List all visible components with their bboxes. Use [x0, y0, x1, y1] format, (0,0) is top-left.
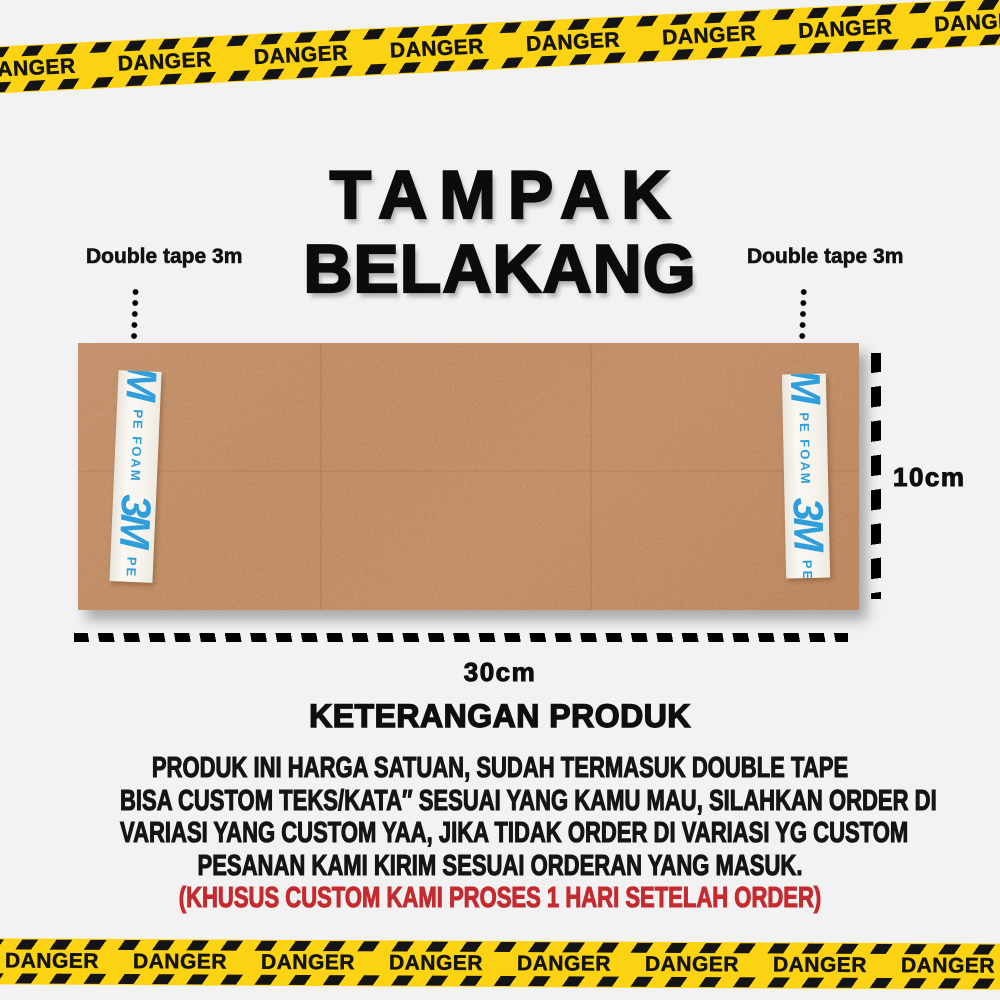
pe-foam-label: PE FOAM — [797, 412, 814, 486]
title-line-1: TAMPAK — [6, 158, 1000, 232]
product-board-back: 3M PE FOAM 3M PE FOAM 3M PE FOAM 3M PE F… — [78, 343, 859, 610]
3m-logo: 3M — [120, 370, 162, 398]
board-seam — [320, 343, 322, 610]
danger-text: DANGER — [389, 951, 483, 975]
wood-texture — [78, 343, 859, 610]
danger-text: DANGER — [253, 41, 348, 69]
3m-tape-strip-text: 3M PE FOAM 3M PE FOAM — [782, 374, 830, 579]
double-tape-label-right: Double tape 3m — [747, 245, 903, 269]
description-line: BISA CUSTOM TEKS/KATA″ SESUAI YANG KAMU … — [120, 785, 880, 818]
danger-text: DANGER — [389, 35, 484, 63]
3m-logo: 3M — [784, 374, 827, 401]
product-description: PRODUK INI HARGA SATUAN, SUDAH TERMASUK … — [120, 752, 880, 915]
danger-text: DANGER — [901, 954, 995, 978]
width-dimension-line — [74, 633, 848, 642]
board-seam — [590, 343, 592, 610]
danger-text: DANGER — [662, 21, 757, 49]
danger-text: DANGER — [0, 54, 76, 82]
pe-foam-label: PE FOAM — [800, 560, 817, 579]
danger-text: DANGER — [117, 48, 212, 76]
custom-note-highlight: (KHUSUS CUSTOM KAMI PROSES 1 HARI SETELA… — [120, 882, 880, 915]
pe-foam-label: PE FOAM — [128, 409, 146, 483]
description-line: PRODUK INI HARGA SATUAN, SUDAH TERMASUK … — [120, 752, 880, 785]
title-line-2: BELAKANG — [0, 232, 1000, 306]
3m-logo: 3M — [787, 497, 830, 548]
danger-text: DANGER — [645, 953, 739, 977]
3m-tape-strip-right: 3M PE FOAM 3M PE FOAM — [782, 374, 830, 579]
width-dimension-label: 30cm — [0, 657, 1000, 688]
description-line: VARIASI YANG CUSTOM YAA, JIKA TIDAK ORDE… — [120, 817, 880, 850]
danger-text: DANGER — [773, 953, 867, 977]
danger-text: DANGER — [5, 949, 99, 973]
3m-tape-strip-left: 3M PE FOAM 3M PE FOAM — [109, 370, 161, 583]
3m-logo: 3M — [114, 494, 158, 546]
danger-text: DANGER — [526, 28, 621, 56]
board-seam — [78, 470, 859, 472]
product-infographic: DANGER DANGER DANGER DANGER DANGER DANGE… — [0, 0, 1000, 1000]
danger-text: DANGER — [133, 950, 227, 974]
danger-text: DANGER — [934, 8, 1000, 36]
page-title: TAMPAK BELAKANG — [0, 158, 1000, 306]
pe-foam-label: PE FOAM — [121, 557, 139, 583]
danger-text: DANGER — [517, 952, 611, 976]
product-info-heading: KETERANGAN PRODUK — [0, 698, 1000, 735]
danger-tape-top: DANGER DANGER DANGER DANGER DANGER DANGE… — [0, 0, 1000, 95]
danger-text: DANGER — [261, 951, 355, 975]
3m-tape-strip-text: 3M PE FOAM 3M PE FOAM — [109, 370, 161, 583]
description-line: PESANAN KAMI KIRIM SESUAI ORDERAN YANG M… — [120, 850, 880, 883]
height-dimension-line — [871, 353, 881, 599]
danger-tape-bottom: DANGER DANGER DANGER DANGER DANGER DANGE… — [0, 938, 1000, 989]
double-tape-label-left: Double tape 3m — [86, 245, 242, 269]
danger-text: DANGER — [798, 15, 893, 43]
height-dimension-label: 10cm — [893, 462, 966, 493]
